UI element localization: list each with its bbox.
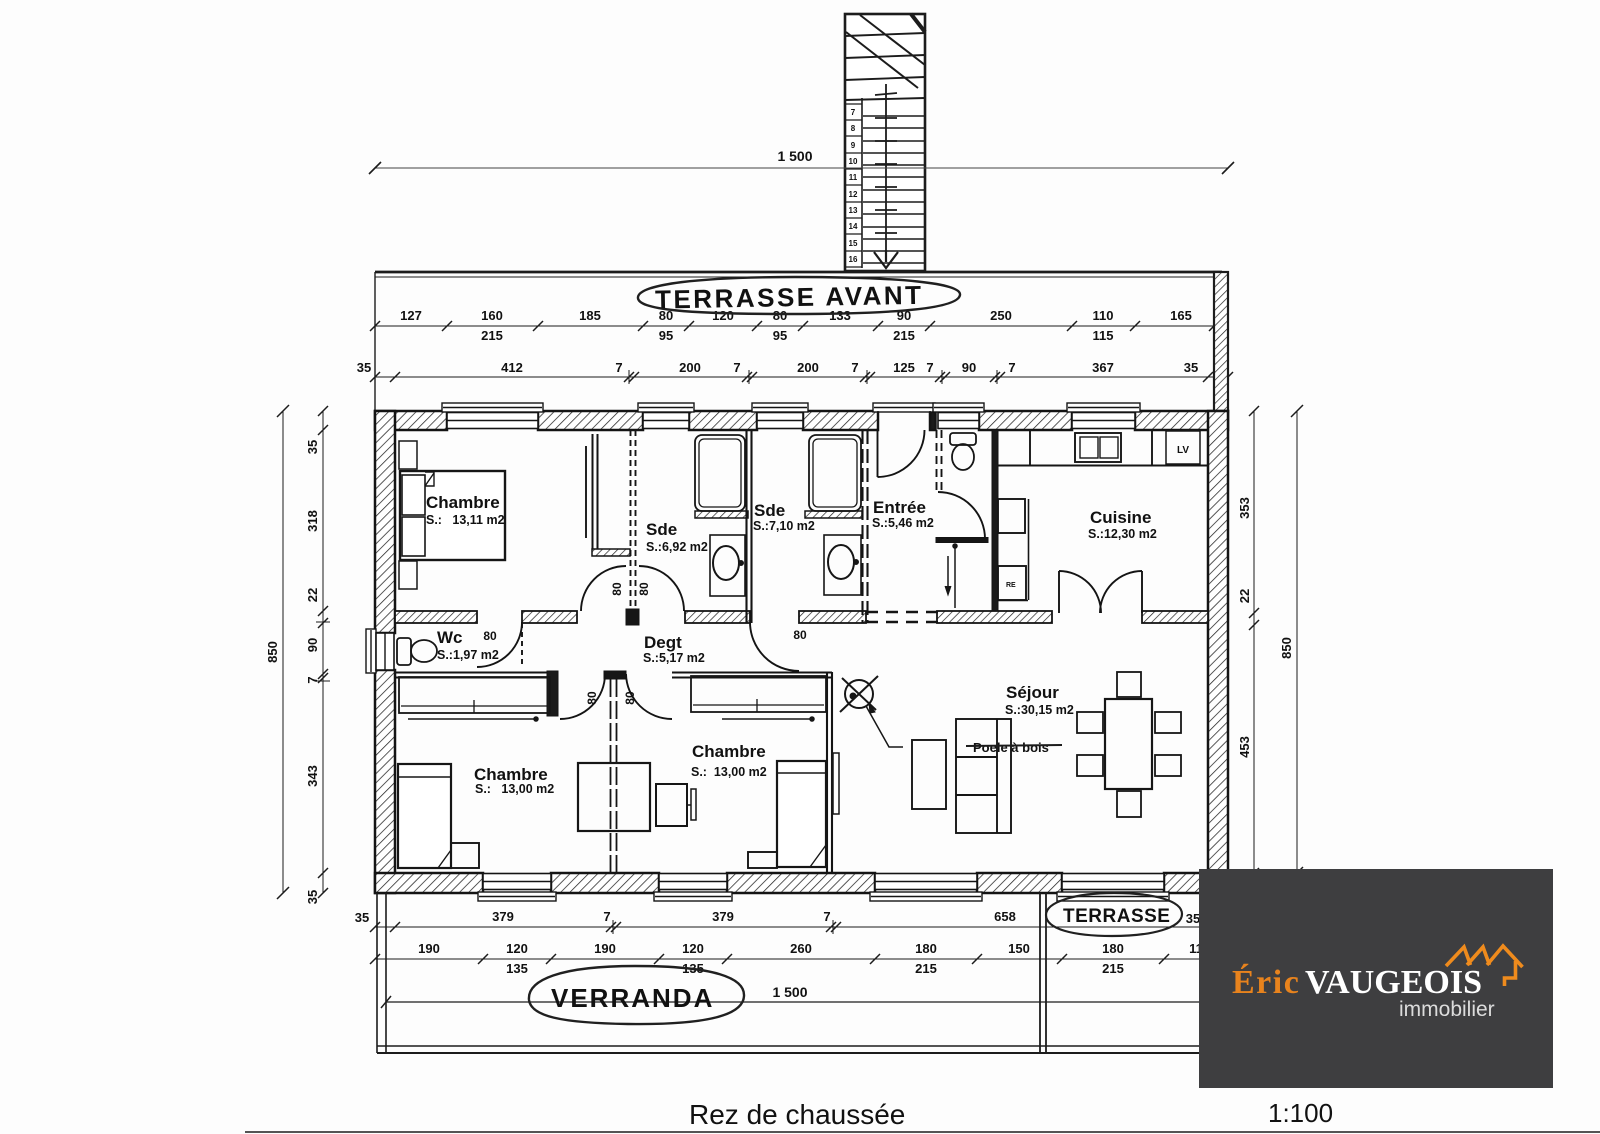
svg-text:Sde: Sde (754, 501, 785, 520)
svg-text:95: 95 (773, 328, 787, 343)
svg-text:260: 260 (790, 941, 812, 956)
svg-text:80: 80 (793, 628, 807, 642)
svg-text:7: 7 (1008, 360, 1015, 375)
svg-text:7: 7 (603, 909, 610, 924)
svg-text:Sde: Sde (646, 520, 677, 539)
svg-text:TERRASSE: TERRASSE (1063, 906, 1170, 927)
svg-text:215: 215 (1102, 961, 1124, 976)
svg-text:165: 165 (1170, 308, 1192, 323)
svg-text:135: 135 (506, 961, 528, 976)
svg-text:80: 80 (585, 691, 599, 705)
svg-text:190: 190 (594, 941, 616, 956)
svg-text:120: 120 (506, 941, 528, 956)
svg-text:7: 7 (615, 360, 622, 375)
svg-text:200: 200 (797, 360, 819, 375)
svg-text:318: 318 (305, 510, 320, 532)
svg-text:379: 379 (492, 909, 514, 924)
svg-text:22: 22 (305, 588, 320, 602)
svg-text:35: 35 (355, 910, 369, 925)
svg-text:Degt: Degt (644, 633, 682, 652)
svg-text:14: 14 (849, 222, 858, 231)
svg-text:35: 35 (305, 890, 320, 904)
svg-text:13: 13 (849, 206, 858, 215)
svg-text:22: 22 (1237, 589, 1252, 603)
svg-text:7: 7 (733, 360, 740, 375)
svg-text:190: 190 (418, 941, 440, 956)
svg-text:S.:5,46 m2: S.:5,46 m2 (872, 516, 934, 530)
svg-text:Poele à bois: Poele à bois (973, 740, 1049, 755)
svg-text:95: 95 (659, 328, 673, 343)
svg-text:658: 658 (994, 909, 1016, 924)
svg-text:S.:1,97 m2: S.:1,97 m2 (437, 648, 499, 662)
svg-text:90: 90 (962, 360, 976, 375)
svg-text:S.: 13,11 m2: S.: 13,11 m2 (426, 513, 505, 527)
svg-text:Wc: Wc (437, 628, 463, 647)
svg-text:80: 80 (623, 691, 637, 705)
svg-text:immobilier: immobilier (1399, 998, 1495, 1021)
svg-text:RE: RE (1006, 582, 1016, 589)
svg-text:S.: 13,00 m2: S.: 13,00 m2 (691, 765, 767, 779)
svg-text:90: 90 (305, 638, 320, 652)
svg-text:11: 11 (849, 173, 858, 182)
svg-text:850: 850 (265, 641, 280, 663)
svg-text:8: 8 (851, 124, 856, 133)
svg-text:453: 453 (1237, 736, 1252, 758)
svg-text:110: 110 (1093, 308, 1114, 323)
svg-text:9: 9 (851, 141, 856, 150)
svg-text:379: 379 (712, 909, 734, 924)
svg-text:Cuisine: Cuisine (1090, 508, 1151, 527)
svg-text:VAUGEOIS: VAUGEOIS (1305, 964, 1482, 1001)
svg-text:35: 35 (305, 440, 320, 454)
svg-text:12: 12 (849, 190, 858, 199)
svg-text:215: 215 (481, 328, 503, 343)
svg-text:1:100: 1:100 (1268, 1098, 1333, 1128)
svg-text:200: 200 (679, 360, 701, 375)
svg-text:Séjour: Séjour (1006, 683, 1059, 702)
svg-text:S.:12,30 m2: S.:12,30 m2 (1088, 527, 1157, 541)
svg-text:367: 367 (1092, 360, 1114, 375)
svg-text:160: 160 (481, 308, 503, 323)
svg-text:127: 127 (400, 308, 422, 323)
svg-text:7: 7 (926, 360, 933, 375)
svg-text:S.: 13,00 m2: S.: 13,00 m2 (475, 782, 554, 796)
svg-text:16: 16 (849, 255, 858, 264)
svg-text:Éric: Éric (1232, 964, 1300, 1001)
svg-text:7: 7 (305, 676, 320, 683)
svg-text:S.:6,92 m2: S.:6,92 m2 (646, 540, 708, 554)
svg-text:7: 7 (851, 108, 856, 117)
svg-text:180: 180 (915, 941, 937, 956)
svg-text:S.:30,15 m2: S.:30,15 m2 (1005, 703, 1074, 717)
svg-text:353: 353 (1237, 497, 1252, 519)
svg-text:125: 125 (893, 360, 915, 375)
svg-text:150: 150 (1008, 941, 1030, 956)
svg-text:35: 35 (1184, 360, 1198, 375)
svg-text:VERRANDA: VERRANDA (551, 983, 714, 1013)
svg-text:TERRASSE AVANT: TERRASSE AVANT (655, 280, 924, 315)
svg-text:35: 35 (1186, 911, 1200, 926)
svg-text:Chambre: Chambre (426, 493, 500, 512)
svg-text:7: 7 (851, 360, 858, 375)
svg-text:10: 10 (849, 157, 858, 166)
svg-text:Entrée: Entrée (873, 498, 926, 517)
svg-text:S.:5,17 m2: S.:5,17 m2 (643, 651, 705, 665)
svg-text:80: 80 (483, 629, 497, 643)
svg-text:343: 343 (305, 765, 320, 787)
svg-text:S.:7,10 m2: S.:7,10 m2 (753, 519, 815, 533)
svg-text:Rez de chaussée: Rez de chaussée (689, 1099, 905, 1130)
svg-text:Chambre: Chambre (692, 742, 766, 761)
svg-text:115: 115 (1093, 328, 1114, 343)
svg-text:215: 215 (893, 328, 915, 343)
svg-text:80: 80 (610, 582, 624, 596)
svg-text:215: 215 (915, 961, 937, 976)
svg-text:1 500: 1 500 (777, 148, 812, 164)
svg-text:15: 15 (849, 239, 858, 248)
svg-text:1 500: 1 500 (772, 984, 807, 1000)
svg-text:250: 250 (990, 308, 1012, 323)
svg-text:850: 850 (1279, 637, 1294, 659)
svg-text:80: 80 (637, 582, 651, 596)
svg-text:412: 412 (501, 360, 523, 375)
svg-text:LV: LV (1177, 445, 1189, 456)
svg-text:180: 180 (1102, 941, 1124, 956)
svg-text:35: 35 (357, 360, 371, 375)
svg-text:120: 120 (682, 941, 704, 956)
svg-text:185: 185 (579, 308, 601, 323)
svg-text:7: 7 (823, 909, 830, 924)
